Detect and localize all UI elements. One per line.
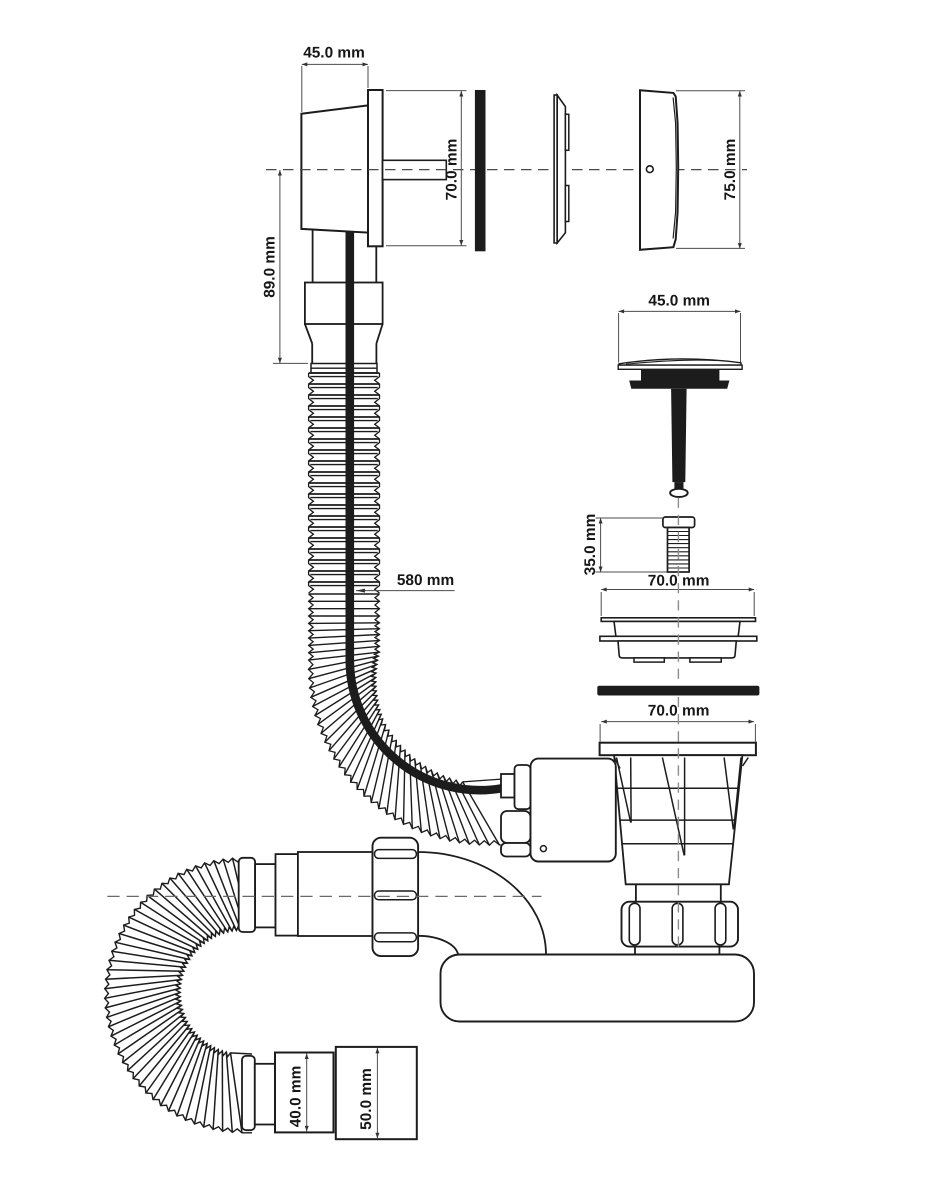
svg-text:50.0 mm: 50.0 mm bbox=[358, 1068, 375, 1130]
svg-text:580 mm: 580 mm bbox=[397, 572, 454, 589]
svg-text:35.0 mm: 35.0 mm bbox=[582, 514, 599, 576]
svg-text:75.0 mm: 75.0 mm bbox=[722, 139, 739, 201]
svg-text:89.0 mm: 89.0 mm bbox=[262, 236, 279, 298]
svg-text:40.0 mm: 40.0 mm bbox=[287, 1066, 304, 1128]
svg-text:45.0 mm: 45.0 mm bbox=[303, 45, 365, 62]
svg-text:45.0 mm: 45.0 mm bbox=[648, 293, 710, 310]
svg-text:70.0 mm: 70.0 mm bbox=[444, 139, 461, 201]
